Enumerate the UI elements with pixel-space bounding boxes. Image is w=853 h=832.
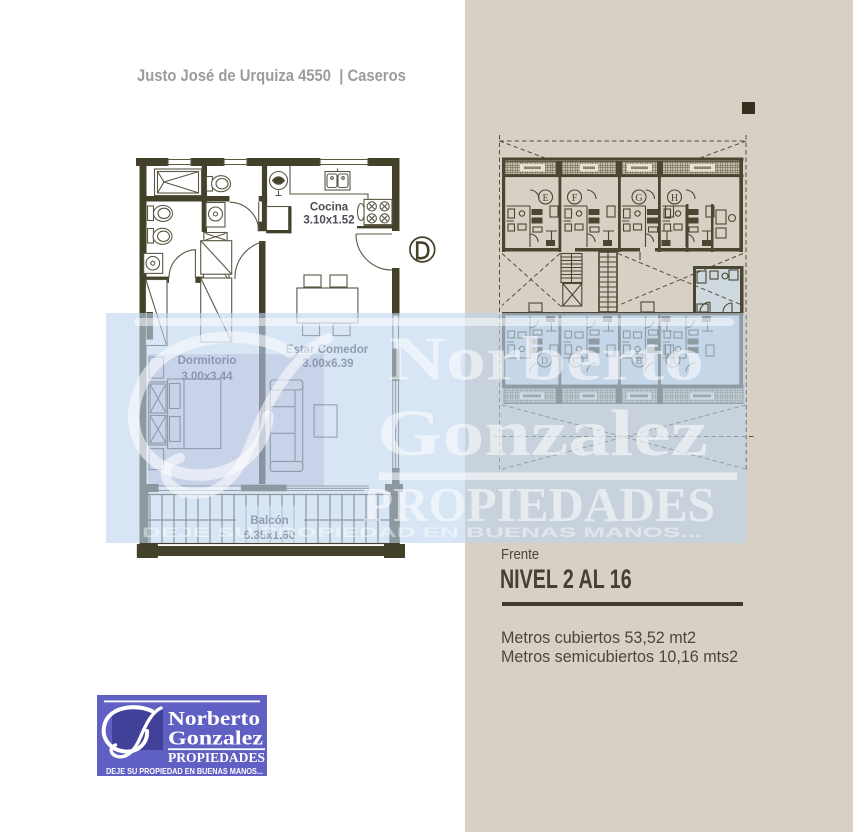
svg-text:Gonzalez: Gonzalez xyxy=(168,728,263,750)
svg-text:DEJE SU PROPIEDAD EN BUENAS MA: DEJE SU PROPIEDAD EN BUENAS MANOS... xyxy=(106,767,263,776)
svg-text:PROPIEDADES: PROPIEDADES xyxy=(168,750,265,765)
